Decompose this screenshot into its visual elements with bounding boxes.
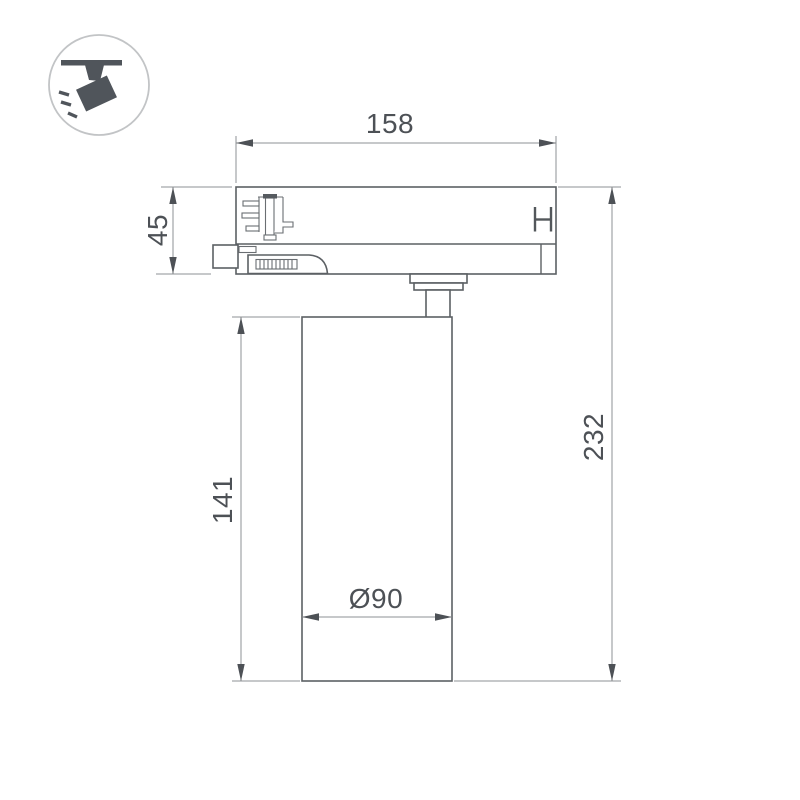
dimension-drawing-page: 158 45 141 <box>0 0 800 800</box>
mount-stem <box>426 290 450 318</box>
dim-158-arrow-left <box>236 139 253 146</box>
dim-232-arrow-bottom <box>608 664 615 681</box>
dim-158-label: 158 <box>366 108 414 139</box>
latch-button <box>239 247 256 253</box>
dim-141-arrow-bottom <box>237 664 244 681</box>
contact-pin-3 <box>246 226 259 231</box>
contact-pin-1 <box>243 201 259 206</box>
mount-flange-lower <box>414 283 463 290</box>
contact-post <box>266 198 275 235</box>
dim-232-label: 232 <box>578 413 609 461</box>
dim-232-arrow-top <box>608 187 615 204</box>
track-spotlight-icon <box>49 35 149 135</box>
contact-foot <box>264 235 276 240</box>
dim-body-height: 141 <box>207 317 300 681</box>
mount-flange-upper <box>410 274 467 283</box>
contact-post-cap <box>263 194 277 199</box>
dim-90-label: Ø90 <box>349 583 403 614</box>
latch-lever <box>213 245 238 268</box>
icon-track-bar <box>61 60 122 66</box>
dim-45-arrow-top <box>169 187 176 204</box>
dim-45-label: 45 <box>142 214 173 246</box>
dim-141-arrow-top <box>237 317 244 334</box>
dim-45-arrow-bottom <box>169 257 176 274</box>
dim-141-label: 141 <box>207 476 238 524</box>
contact-pin-2 <box>242 213 259 218</box>
dim-158-arrow-right <box>539 139 556 146</box>
slider-ribs <box>256 260 297 270</box>
lamp-cylinder-body <box>302 317 452 681</box>
dimension-drawing: 158 45 141 <box>0 0 800 800</box>
dim-top-width: 158 <box>236 108 556 183</box>
